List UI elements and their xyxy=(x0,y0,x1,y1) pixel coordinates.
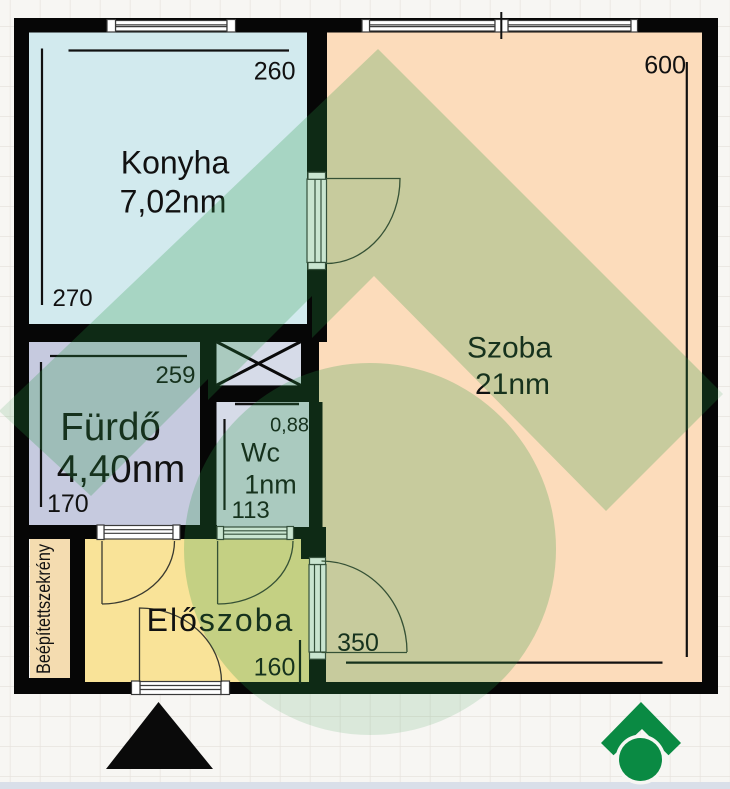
svg-text:Beépítettszekrény: Beépítettszekrény xyxy=(34,544,55,674)
svg-text:Konyha: Konyha xyxy=(121,145,230,181)
svg-text:260: 260 xyxy=(254,58,296,86)
svg-text:600: 600 xyxy=(644,52,686,80)
svg-text:270: 270 xyxy=(53,285,93,312)
svg-text:170: 170 xyxy=(47,490,89,518)
